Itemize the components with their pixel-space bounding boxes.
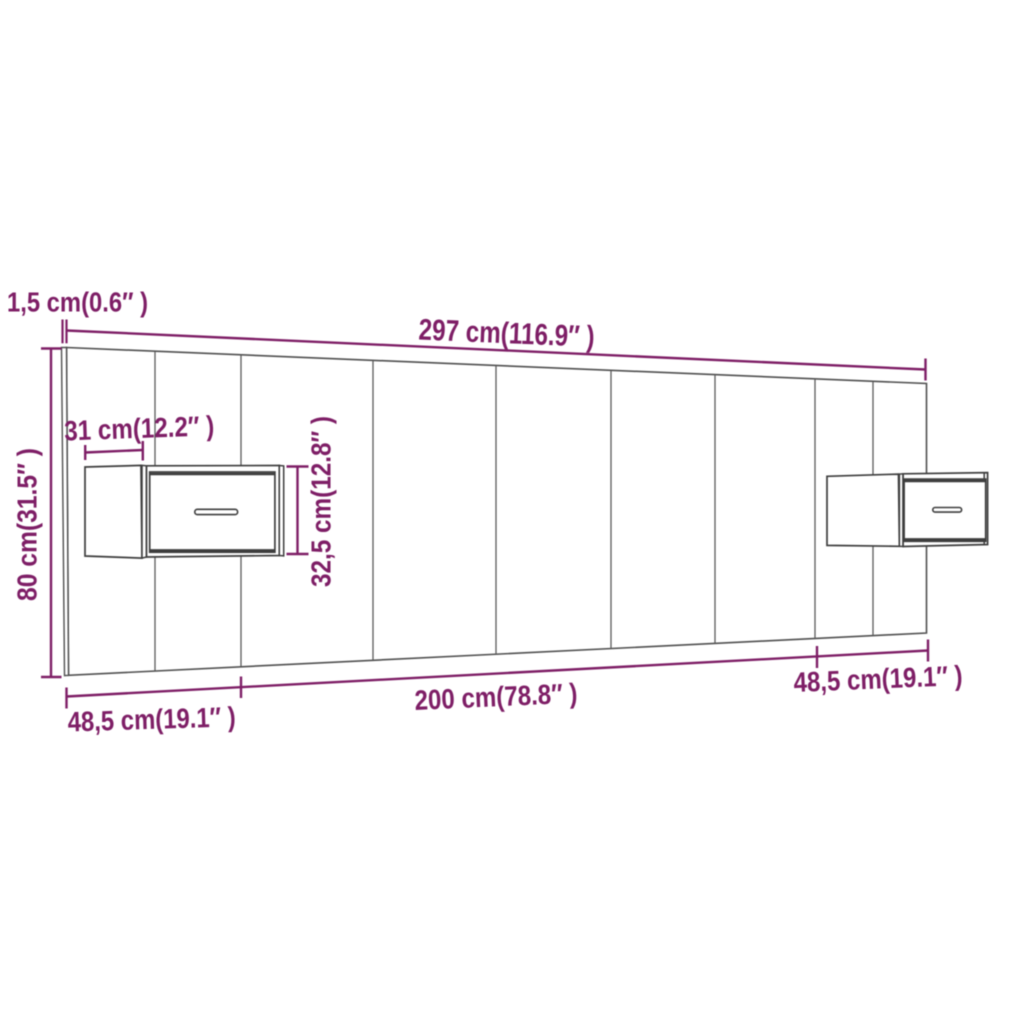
svg-text:32,5 cm(12.8″ ): 32,5 cm(12.8″ )	[306, 416, 337, 587]
svg-text:80 cm(31.5″ ): 80 cm(31.5″ )	[12, 448, 43, 601]
svg-text:48,5 cm(19.1″ ): 48,5 cm(19.1″ )	[67, 701, 236, 737]
svg-text:31 cm(12.2″ ): 31 cm(12.2″ )	[64, 410, 215, 446]
svg-text:1,5 cm(0.6″ ): 1,5 cm(0.6″ )	[7, 287, 148, 318]
